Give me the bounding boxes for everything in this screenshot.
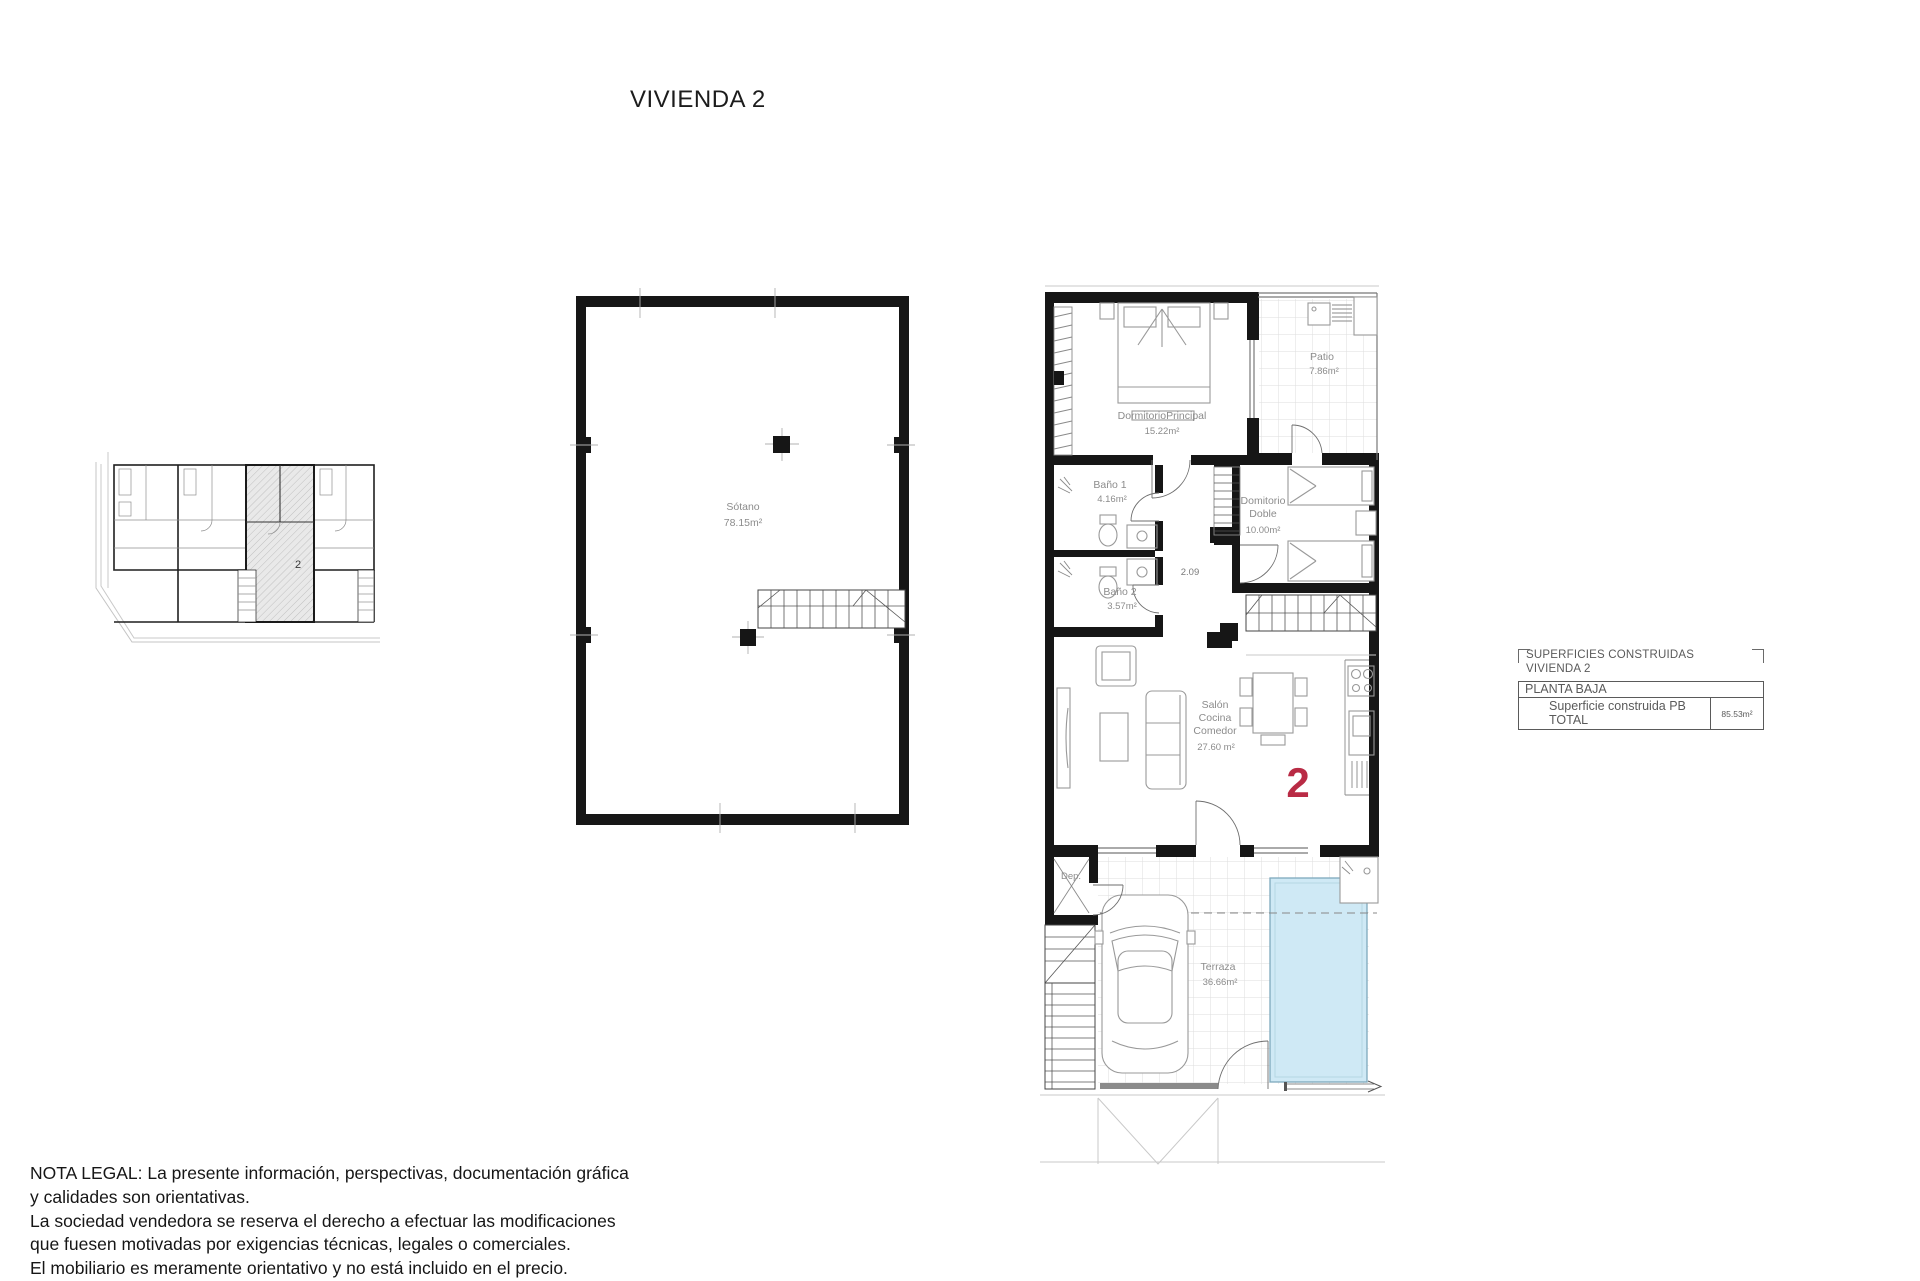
surface-summary-table: SUPERFICIES CONSTRUIDAS VIVIENDA 2 PLANT…: [1518, 648, 1764, 730]
legal-note-line: que fuesen motivadas por exigencias técn…: [30, 1233, 630, 1257]
legal-note-line: NOTA LEGAL: La presente información, per…: [30, 1162, 630, 1186]
bedroom-window: [1250, 340, 1254, 418]
twin-beds-icon: [1288, 467, 1376, 581]
outdoor-shower: [1340, 857, 1378, 903]
corridor-dimension: 2.09: [1181, 567, 1200, 578]
driveway: [1040, 1095, 1385, 1164]
tv-unit-icon: [1057, 688, 1070, 788]
basement-axis-marks: [570, 288, 915, 833]
armchair-icon: [1096, 646, 1136, 686]
label-bano1-area: 4.16m²: [1097, 494, 1127, 505]
ground-floor-plan: DormitorioPrincipal 15.22m² Patio 7.86m²…: [1040, 283, 1385, 1173]
label-dormitorio-principal-area: 15.22m²: [1145, 426, 1180, 437]
summary-table-header: SUPERFICIES CONSTRUIDAS VIVIENDA 2: [1518, 648, 1764, 679]
dep-storage: [1054, 859, 1089, 913]
summary-title-line2: VIVIENDA 2: [1526, 663, 1756, 677]
label-salon-area: 27.60 m²: [1197, 742, 1235, 753]
pool: [1270, 878, 1367, 1082]
exterior-stairs-icon: [1045, 983, 1095, 1089]
car-icon: [1095, 895, 1195, 1073]
unit-number-label: 2: [1286, 759, 1309, 806]
site-plan: 2: [92, 452, 382, 644]
site-unit2-label: 2: [295, 559, 301, 571]
stairs-up-icon: [1246, 595, 1376, 655]
basement-room-label: Sótano 78.15m²: [724, 501, 763, 529]
label-dormitorio-principal: DormitorioPrincipal: [1118, 410, 1207, 422]
label-dep: Dep.: [1061, 871, 1081, 882]
summary-total-label: Superficie construida PB TOTAL: [1519, 698, 1711, 729]
label-bano1: Baño 1: [1093, 479, 1126, 491]
basement-room-name: Sótano: [726, 501, 759, 513]
label-salon-1: Salón: [1202, 699, 1229, 711]
summary-total-row: Superficie construida PB TOTAL 85.53m²: [1519, 698, 1763, 729]
label-dormitorio-doble-2: Doble: [1249, 508, 1277, 520]
legal-note-line: La sociedad vendedora se reserva el dere…: [30, 1210, 630, 1234]
label-dormitorio-doble-1: Domitorio: [1241, 495, 1286, 507]
basement-stairs: [758, 590, 905, 628]
label-bano2-area: 3.57m²: [1107, 601, 1137, 612]
sofa-icon: [1146, 691, 1186, 789]
label-salon-3: Comedor: [1193, 725, 1237, 737]
label-terraza-area: 36.66m²: [1203, 977, 1238, 988]
coffee-table-icon: [1100, 713, 1128, 761]
summary-table-body: PLANTA BAJA Superficie construida PB TOT…: [1518, 681, 1764, 730]
basement-column: [765, 428, 799, 461]
summary-title-line1: SUPERFICIES CONSTRUIDAS: [1526, 649, 1756, 663]
basement-plan: Sótano 78.15m²: [570, 288, 915, 833]
salon-windows: [1098, 848, 1308, 853]
label-terraza: Terraza: [1200, 961, 1235, 973]
legal-note-line: El mobiliario es meramente orientativo y…: [30, 1257, 630, 1281]
legal-note: NOTA LEGAL: La presente información, per…: [30, 1162, 630, 1281]
label-patio-area: 7.86m²: [1309, 366, 1339, 377]
label-patio: Patio: [1310, 351, 1334, 363]
wardrobe: [1054, 307, 1072, 455]
label-salon-2: Cocina: [1199, 712, 1232, 724]
legal-note-line: y calidades son orientativas.: [30, 1186, 630, 1210]
site-interior-walls: [114, 465, 374, 548]
label-bano2: Baño 2: [1103, 586, 1136, 598]
dining-table-icon: [1240, 673, 1307, 745]
bed-double-icon: [1100, 303, 1228, 420]
basement-room-area: 78.15m²: [724, 517, 763, 529]
label-dormitorio-doble-area: 10.00m²: [1246, 525, 1281, 536]
basement-walls: [576, 296, 909, 825]
summary-section-row: PLANTA BAJA: [1519, 682, 1763, 698]
page-title: VIVIENDA 2: [630, 86, 766, 114]
summary-total-value: 85.53m²: [1711, 698, 1763, 729]
exterior-stair-landing: [1045, 925, 1095, 983]
